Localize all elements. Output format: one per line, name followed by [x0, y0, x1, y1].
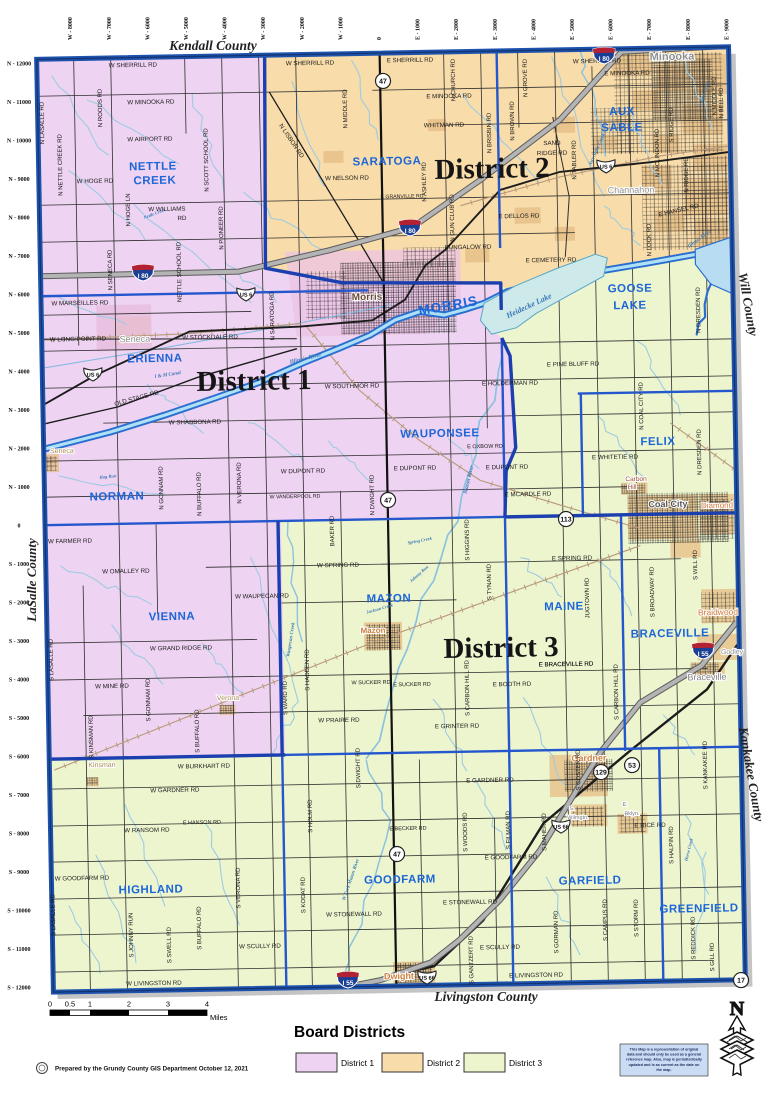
svg-text:N VERONA RD: N VERONA RD	[237, 462, 244, 504]
svg-text:S CARBON HILL RD: S CARBON HILL RD	[614, 663, 621, 720]
svg-text:W STONEWALL RD: W STONEWALL RD	[326, 911, 382, 919]
svg-text:S STORM RD: S STORM RD	[634, 899, 641, 937]
svg-text:W - 6000: W - 6000	[145, 17, 151, 40]
svg-text:S WOODS RD: S WOODS RD	[463, 812, 470, 852]
svg-text:S - 2000: S - 2000	[9, 601, 29, 607]
svg-text:N SCOTT SCHOOL RD: N SCOTT SCHOOL RD	[203, 128, 210, 192]
svg-text:reference map. Also, map is pe: reference map. Also, map is periodisdica…	[626, 1058, 703, 1062]
svg-text:S HALPIN RD: S HALPIN RD	[669, 826, 676, 864]
svg-text:N SARATOGA RD: N SARATOGA RD	[270, 291, 277, 341]
svg-text:W - 3000: W - 3000	[261, 17, 267, 40]
svg-text:N - 8000: N - 8000	[8, 216, 29, 222]
svg-text:the map.: the map.	[656, 1068, 671, 1072]
svg-text:S - 4000: S - 4000	[9, 678, 29, 684]
svg-text:E - 7000: E - 7000	[647, 19, 653, 40]
svg-text:S CAMPUS RD: S CAMPUS RD	[603, 899, 610, 941]
svg-text:W - 1000: W - 1000	[338, 17, 344, 40]
svg-text:N DRESDEN RD: N DRESDEN RD	[696, 286, 703, 332]
svg-text:S JOHNNY RUN: S JOHNNY RUN	[129, 913, 136, 958]
svg-text:E DUPONT RD: E DUPONT RD	[486, 464, 529, 472]
svg-text:W - 7000: W - 7000	[107, 17, 113, 40]
svg-text:SARATOGA: SARATOGA	[352, 155, 421, 168]
svg-text:W LIVINGSTON RD: W LIVINGSTON RD	[126, 980, 182, 988]
svg-text:RIDGE RD: RIDGE RD	[537, 150, 568, 158]
svg-text:SABLE: SABLE	[601, 122, 643, 135]
svg-text:1: 1	[88, 1000, 92, 1009]
svg-text:I 80: I 80	[599, 56, 610, 63]
svg-text:E - 2000: E - 2000	[454, 19, 460, 40]
svg-text:N MIDDLE RD: N MIDDLE RD	[343, 89, 350, 129]
svg-text:I 80: I 80	[138, 273, 149, 280]
svg-text:W VANDERPOOL RD: W VANDERPOOL RD	[270, 494, 321, 501]
svg-text:S - 5000: S - 5000	[9, 716, 29, 722]
svg-text:S REDDICK RD: S REDDICK RD	[691, 916, 698, 960]
svg-text:Kendall County: Kendall County	[168, 38, 257, 53]
svg-text:W SPRING RD: W SPRING RD	[317, 562, 360, 570]
svg-text:I 55: I 55	[698, 651, 709, 658]
svg-text:E - 5000: E - 5000	[570, 19, 576, 40]
svg-text:N DRESDEN RD: N DRESDEN RD	[697, 428, 704, 474]
svg-text:E STONEWALL RD: E STONEWALL RD	[443, 899, 498, 907]
svg-text:S MAHER RD: S MAHER RD	[542, 813, 549, 851]
svg-text:W MINE RD: W MINE RD	[95, 683, 129, 691]
svg-text:W SUCKER RD: W SUCKER RD	[351, 680, 390, 687]
svg-text:N - 4000: N - 4000	[8, 370, 29, 376]
svg-text:W SHERRILL RD: W SHERRILL RD	[286, 60, 335, 68]
svg-text:47: 47	[384, 498, 392, 505]
svg-text:VIENNA: VIENNA	[149, 611, 196, 624]
svg-text:US 6: US 6	[600, 164, 613, 170]
svg-text:W SOUTHMOR RD: W SOUTHMOR RD	[325, 382, 380, 390]
svg-text:W LONG POINT RD: W LONG POINT RD	[50, 335, 107, 343]
svg-text:US 6: US 6	[87, 373, 100, 379]
svg-text:E LIVINGSTON RD: E LIVINGSTON RD	[509, 972, 564, 980]
svg-text:S WARD RD: S WARD RD	[283, 680, 290, 715]
svg-text:N - 1000: N - 1000	[8, 485, 29, 491]
svg-text:S HOLM RD: S HOLM RD	[308, 799, 315, 833]
svg-text:BRACEVILLE: BRACEVILLE	[631, 627, 710, 640]
svg-text:53: 53	[628, 763, 636, 770]
svg-text:W - 8000: W - 8000	[68, 17, 74, 40]
svg-text:S TYNAN RD: S TYNAN RD	[487, 563, 494, 600]
svg-text:Carbon: Carbon	[625, 476, 647, 483]
svg-text:GOOSE: GOOSE	[608, 283, 653, 296]
svg-text:LAKE: LAKE	[613, 300, 647, 313]
svg-text:S - 11000: S - 11000	[7, 947, 30, 953]
svg-text:E GRINTER RD: E GRINTER RD	[435, 723, 480, 731]
svg-text:2: 2	[127, 1000, 131, 1009]
svg-text:S BUFFALO RD: S BUFFALO RD	[197, 906, 204, 950]
svg-text:WHITMAN RD: WHITMAN RD	[424, 122, 465, 130]
svg-text:RD: RD	[177, 215, 187, 222]
svg-text:N BRISBIN RD: N BRISBIN RD	[487, 112, 494, 153]
svg-text:I 80: I 80	[405, 228, 416, 235]
svg-text:N MIDDLE RD: N MIDDLE RD	[712, 76, 719, 116]
svg-text:SAND: SAND	[543, 140, 561, 147]
svg-text:NORMAN: NORMAN	[89, 491, 144, 504]
svg-text:Livingston County: Livingston County	[433, 989, 538, 1004]
svg-text:W BURKHART RD: W BURKHART RD	[178, 763, 231, 771]
svg-text:N - 11000: N - 11000	[7, 100, 31, 106]
svg-text:Channahon: Channahon	[608, 184, 655, 195]
svg-text:Miles: Miles	[210, 1013, 228, 1022]
svg-text:Seneca: Seneca	[120, 334, 151, 345]
svg-text:S - 8000: S - 8000	[9, 832, 29, 838]
svg-text:W GOODFARM RD: W GOODFARM RD	[55, 875, 110, 883]
svg-text:ERIENNA: ERIENNA	[127, 353, 182, 366]
svg-text:District 1: District 1	[341, 1058, 374, 1068]
svg-text:S - 9000: S - 9000	[9, 870, 29, 876]
svg-text:US 66: US 66	[553, 825, 569, 831]
svg-text:N DWIGHT RD: N DWIGHT RD	[370, 474, 377, 515]
svg-text:N - 6000: N - 6000	[8, 293, 29, 299]
svg-text:129: 129	[595, 770, 607, 777]
svg-text:E DELLOS RD: E DELLOS RD	[498, 213, 540, 221]
svg-text:District 2: District 2	[427, 1058, 460, 1068]
svg-text:W PRAIRE RD: W PRAIRE RD	[318, 717, 360, 725]
svg-text:S - 6000: S - 6000	[9, 755, 29, 761]
svg-text:N GONNAM RD: N GONNAM RD	[159, 466, 166, 510]
svg-text:E PINE BLUFF RD: E PINE BLUFF RD	[547, 361, 600, 369]
svg-text:District 3: District 3	[509, 1058, 542, 1068]
svg-text:E RICE RD: E RICE RD	[634, 822, 666, 830]
svg-text:W SHABBONA RD: W SHABBONA RD	[169, 419, 222, 427]
svg-text:N MCLINDON RD: N MCLINDON RD	[655, 128, 662, 177]
svg-text:Diamond: Diamond	[701, 501, 733, 511]
svg-text:Wilmgtn.: Wilmgtn.	[567, 815, 589, 821]
svg-text:S WILL RD: S WILL RD	[693, 549, 700, 580]
svg-text:N LASALLE RD: N LASALLE RD	[40, 101, 47, 144]
svg-text:Godley: Godley	[721, 649, 744, 656]
svg-text:W OMALLEY RD: W OMALLEY RD	[102, 568, 150, 576]
svg-text:W WILLIAMS: W WILLIAMS	[148, 206, 185, 214]
svg-text:S RIDGE RD: S RIDGE RD	[669, 107, 676, 143]
svg-text:S FILMAN RD: S FILMAN RD	[506, 810, 513, 849]
svg-text:GARFIELD: GARFIELD	[559, 874, 622, 887]
svg-text:E GOODFARM RD: E GOODFARM RD	[485, 854, 538, 862]
svg-text:S HADDEN RD: S HADDEN RD	[305, 649, 312, 691]
svg-text:E - 8000: E - 8000	[686, 19, 692, 40]
svg-text:Seneca: Seneca	[50, 448, 74, 455]
svg-text:0: 0	[18, 524, 21, 530]
svg-text:0: 0	[48, 1000, 52, 1009]
svg-text:E GARDNER RD: E GARDNER RD	[466, 777, 514, 785]
svg-text:E MINOOKA RD: E MINOOKA RD	[604, 70, 650, 78]
svg-text:N HOGE LN: N HOGE LN	[126, 193, 133, 226]
svg-text:E HANSON RD: E HANSON RD	[183, 820, 221, 827]
svg-text:S BUFFALO RD: S BUFFALO RD	[195, 709, 202, 753]
svg-text:Coal City: Coal City	[648, 499, 687, 510]
svg-text:HIGHLAND: HIGHLAND	[118, 883, 183, 896]
svg-text:W SHERRILL RD: W SHERRILL RD	[109, 62, 158, 70]
svg-text:Bklyn.: Bklyn.	[624, 811, 640, 817]
svg-text:N BUFFALO RD: N BUFFALO RD	[197, 471, 204, 515]
svg-text:E.: E.	[622, 802, 628, 808]
svg-text:N CHURCH RD: N CHURCH RD	[451, 58, 458, 101]
svg-text:E SHERRILL RD: E SHERRILL RD	[387, 57, 434, 65]
svg-text:S HIGGINS RD: S HIGGINS RD	[465, 519, 472, 561]
svg-text:FELIX: FELIX	[640, 436, 675, 449]
svg-text:N ASHLEY RD: N ASHLEY RD	[422, 161, 429, 201]
svg-text:data and should only be used a: data and should only be used as a genera…	[627, 1053, 701, 1057]
svg-text:17: 17	[737, 978, 745, 985]
svg-text:S - 12000: S - 12000	[7, 986, 30, 992]
svg-text:N RIDGE RD: N RIDGE RD	[684, 157, 691, 193]
svg-text:S GORMAN RD: S GORMAN RD	[554, 910, 561, 954]
svg-text:W GRAND RIDGE RD: W GRAND RIDGE RD	[150, 644, 213, 652]
svg-text:S DWIGHT RD: S DWIGHT RD	[356, 747, 363, 788]
svg-text:BUNGALOW RD: BUNGALOW RD	[445, 244, 492, 252]
svg-text:W RANSOM RD: W RANSOM RD	[124, 827, 170, 835]
svg-text:47: 47	[379, 78, 387, 85]
svg-text:E SCULLY RD: E SCULLY RD	[480, 944, 521, 952]
svg-text:Verona: Verona	[217, 695, 239, 702]
svg-text:S BROADWAY RD: S BROADWAY RD	[650, 566, 657, 617]
svg-text:N - 2000: N - 2000	[8, 447, 29, 453]
svg-text:S - 3000: S - 3000	[9, 639, 29, 645]
svg-text:E OXBOW RD: E OXBOW RD	[467, 444, 503, 451]
svg-text:N PIONEER RD: N PIONEER RD	[219, 206, 226, 250]
svg-text:E - 4000: E - 4000	[531, 19, 537, 40]
svg-text:W FARMER RD: W FARMER RD	[48, 538, 93, 546]
svg-text:S SWELL RD: S SWELL RD	[167, 926, 174, 963]
svg-text:E - 9000: E - 9000	[724, 19, 730, 40]
svg-text:S - 1000: S - 1000	[9, 562, 29, 568]
svg-text:W MINOOKA RD: W MINOOKA RD	[127, 98, 175, 106]
svg-text:S LASALLE RD: S LASALLE RD	[49, 638, 56, 681]
svg-text:Board Districts: Board Districts	[294, 1024, 405, 1041]
svg-text:E MINOOKA RD: E MINOOKA RD	[426, 93, 472, 101]
svg-text:Mazon: Mazon	[360, 626, 385, 635]
svg-text:S GONNAM RD: S GONNAM RD	[146, 678, 153, 722]
svg-text:W - 2000: W - 2000	[300, 17, 306, 40]
svg-text:E BRACEVILLE RD: E BRACEVILLE RD	[539, 661, 594, 669]
svg-text:Minooka: Minooka	[650, 51, 696, 64]
svg-text:47: 47	[393, 852, 401, 859]
svg-text:E GRANVILLE RD: E GRANVILLE RD	[380, 194, 423, 201]
svg-text:E BECKER RD: E BECKER RD	[389, 826, 426, 833]
svg-text:updated and is as current as t: updated and is as current as the date on	[629, 1063, 700, 1067]
svg-text:BAKER RD: BAKER RD	[330, 515, 337, 546]
svg-text:S LASALLE RD: S LASALLE RD	[51, 893, 58, 936]
svg-text:N - 3000: N - 3000	[8, 408, 29, 414]
svg-text:E DUPONT RD: E DUPONT RD	[394, 465, 437, 473]
svg-text:E BOOTH RD: E BOOTH RD	[493, 681, 532, 689]
svg-text:N - 12000: N - 12000	[7, 62, 31, 68]
svg-text:NETTLE: NETTLE	[129, 160, 177, 173]
svg-text:District 1: District 1	[196, 364, 312, 398]
svg-text:N - 7000: N - 7000	[8, 254, 29, 260]
svg-text:0.5: 0.5	[65, 1000, 75, 1009]
svg-text:Morris: Morris	[352, 292, 383, 304]
svg-text:S - 10000: S - 10000	[7, 909, 30, 915]
svg-text:S KINSMAN RD: S KINSMAN RD	[89, 715, 96, 759]
svg-text:3: 3	[166, 1000, 170, 1009]
svg-text:N - 5000: N - 5000	[8, 331, 29, 337]
svg-text:JUGTOWN RD: JUGTOWN RD	[585, 577, 592, 618]
svg-text:0: 0	[377, 37, 383, 40]
svg-text:S - 7000: S - 7000	[9, 793, 29, 799]
svg-text:S CARBON HILL RD: S CARBON HILL RD	[465, 659, 472, 716]
svg-text:US 66: US 66	[419, 976, 435, 982]
svg-text:S VERONA RD: S VERONA RD	[236, 867, 243, 909]
svg-text:N BROWN RD: N BROWN RD	[510, 101, 517, 141]
svg-text:LaSalle County: LaSalle County	[24, 538, 39, 623]
svg-text:W DUPONT RD: W DUPONT RD	[281, 468, 326, 476]
svg-text:S GILL RD: S GILL RD	[710, 942, 717, 972]
svg-text:N - 9000: N - 9000	[8, 177, 29, 183]
svg-text:Prepared by the Grundy County: Prepared by the Grundy County GIS Depart…	[55, 1066, 249, 1073]
svg-text:N - 10000: N - 10000	[7, 139, 31, 145]
svg-text:S KANKAKEE RD: S KANKAKEE RD	[703, 740, 710, 789]
svg-text:District 3: District 3	[443, 631, 559, 665]
svg-text:WAUPONSEE: WAUPONSEE	[400, 427, 479, 440]
svg-text:W STOCKDALE RD: W STOCKDALE RD	[182, 333, 238, 341]
svg-text:E - 1000: E - 1000	[416, 19, 422, 40]
svg-text:N ROODS RD: N ROODS RD	[98, 88, 105, 127]
svg-text:W SCULLY RD: W SCULLY RD	[239, 943, 281, 951]
svg-text:AUX: AUX	[609, 106, 635, 118]
svg-text:I 55: I 55	[343, 980, 354, 987]
svg-text:Braidwood: Braidwood	[698, 607, 739, 618]
svg-text:This Map is a representation o: This Map is a representation of original	[630, 1048, 699, 1052]
svg-text:N LOCK RD: N LOCK RD	[647, 223, 654, 256]
svg-text:NETTLE SCHOOL RD: NETTLE SCHOOL RD	[176, 241, 183, 302]
svg-text:W - 4000: W - 4000	[223, 17, 229, 40]
svg-text:W MARSEILLES RD: W MARSEILLES RD	[51, 299, 109, 307]
svg-text:Hill: Hill	[627, 484, 637, 491]
svg-text:W AIRPORT RD: W AIRPORT RD	[127, 136, 173, 144]
svg-text:W GARDNER RD: W GARDNER RD	[150, 787, 200, 795]
svg-text:E SPRING RD: E SPRING RD	[552, 555, 593, 563]
svg-text:N NETTLE CREEK RD: N NETTLE CREEK RD	[57, 133, 64, 195]
svg-text:113: 113	[560, 517, 572, 524]
svg-text:US 6: US 6	[240, 292, 253, 298]
svg-text:W - 5000: W - 5000	[184, 17, 190, 40]
svg-text:E HOLDERMAN RD: E HOLDERMAN RD	[482, 380, 539, 388]
svg-text:S KODAT RD: S KODAT RD	[301, 876, 308, 913]
svg-text:GOODFARM: GOODFARM	[364, 873, 436, 886]
svg-text:4: 4	[205, 1000, 209, 1009]
svg-text:Dwight: Dwight	[384, 971, 414, 982]
svg-text:E CEMETERY RD: E CEMETERY RD	[526, 257, 577, 265]
svg-text:N COAL CITY RD: N COAL CITY RD	[639, 381, 646, 429]
svg-text:W HOGE RD: W HOGE RD	[77, 178, 114, 186]
svg-text:W WAUPECAN RD: W WAUPECAN RD	[235, 593, 289, 601]
svg-text:E - 3000: E - 3000	[493, 19, 499, 40]
svg-text:S GANTZERT RD: S GANTZERT RD	[469, 935, 476, 984]
svg-text:E MCARDLE RD: E MCARDLE RD	[505, 491, 552, 499]
svg-text:S COSTER RD: S COSTER RD	[576, 749, 583, 791]
svg-text:District 2: District 2	[434, 152, 550, 186]
svg-text:S.: S.	[569, 806, 575, 812]
svg-text:N TABLER RD: N TABLER RD	[572, 140, 579, 180]
svg-text:W NELSON RD: W NELSON RD	[325, 175, 369, 183]
svg-text:E - 6000: E - 6000	[609, 19, 615, 40]
svg-text:Kinsman: Kinsman	[88, 762, 115, 769]
svg-text:CREEK: CREEK	[133, 175, 176, 188]
svg-text:E WHITETIE RD: E WHITETIE RD	[592, 454, 639, 462]
svg-text:N GROVE RD: N GROVE RD	[523, 58, 530, 97]
svg-text:E SUCKER RD: E SUCKER RD	[393, 682, 431, 689]
svg-text:N BELL RD: N BELL RD	[719, 87, 726, 119]
svg-text:GREENFIELD: GREENFIELD	[659, 902, 738, 915]
svg-text:MAINE: MAINE	[544, 601, 584, 614]
svg-text:N GUN CLUB RD: N GUN CLUB RD	[450, 194, 457, 242]
svg-text:N SENECA RD: N SENECA RD	[108, 249, 115, 290]
svg-text:Braceville: Braceville	[687, 672, 726, 683]
